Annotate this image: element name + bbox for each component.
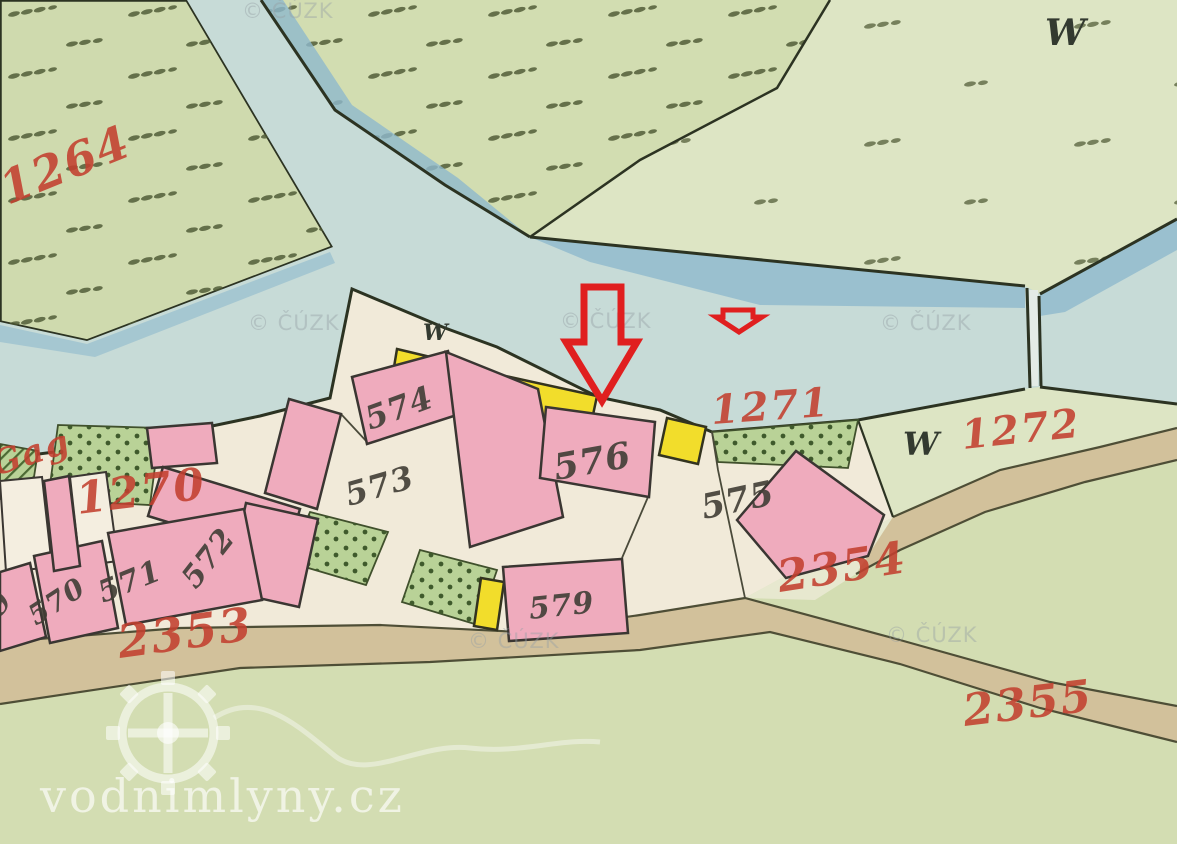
site-watermark-text: vodnimlyny.cz <box>39 769 405 823</box>
house-label-579: 579 <box>527 585 596 627</box>
meadow-mark-spit: W <box>423 320 450 346</box>
wheel-hub <box>157 722 179 744</box>
cuzk-watermark: © ČÚZK <box>242 0 334 23</box>
meadow-mark-1272: W <box>903 425 942 463</box>
cuzk-watermark: © ČÚZK <box>886 622 978 647</box>
cuzk-watermark: © ČÚZK <box>560 308 652 333</box>
weir-line-right <box>1039 296 1041 386</box>
wooden-building-3 <box>659 418 706 464</box>
cuzk-watermark: © ČÚZK <box>248 310 340 335</box>
map-canvas: © ČÚZK © ČÚZK © ČÚZK © ČÚZK © ČÚZK © ČÚZ… <box>0 0 1177 844</box>
cuzk-watermark: © ČÚZK <box>880 310 972 335</box>
cuzk-watermark: © ČÚZK <box>468 628 560 653</box>
cadastral-map: © ČÚZK © ČÚZK © ČÚZK © ČÚZK © ČÚZK © ČÚZ… <box>0 0 1177 844</box>
parcel-label-1271: 1271 <box>709 379 831 434</box>
meadow-mark-topright: W <box>1045 12 1089 54</box>
